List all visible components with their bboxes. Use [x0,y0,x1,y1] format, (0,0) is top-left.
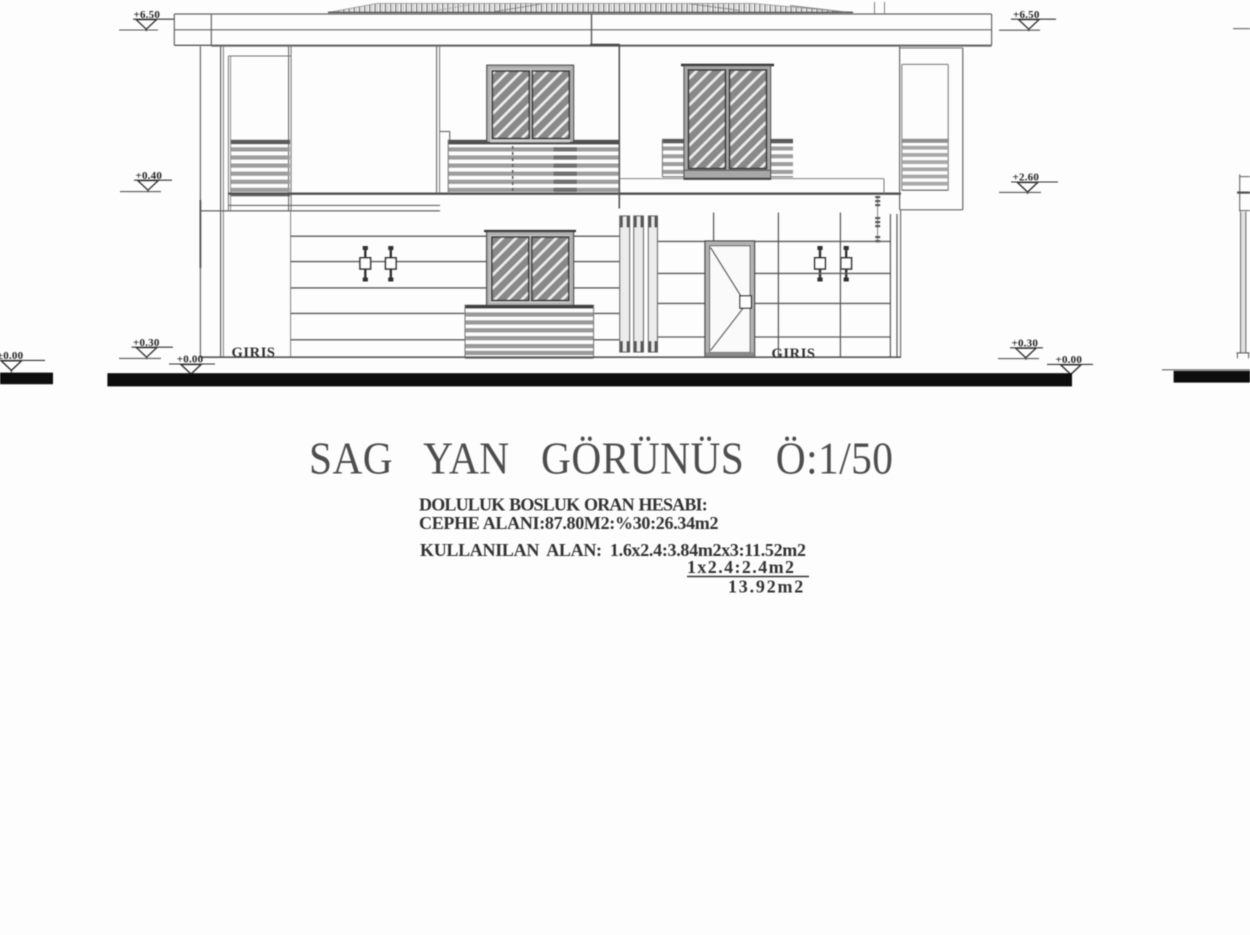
svg-text:13.92m2: 13.92m2 [728,577,805,597]
svg-text:SAG YAN GÖRÜNÜS Ö:1/50: SAG YAN GÖRÜNÜS Ö:1/50 [309,434,893,484]
svg-text:1x2.4:2.4m2: 1x2.4:2.4m2 [687,557,795,577]
svg-text:GIRIS: GIRIS [772,346,816,362]
svg-text:DOLULUK BOSLUK ORAN HESABI:: DOLULUK BOSLUK ORAN HESABI: [419,495,707,515]
svg-text:GIRIS: GIRIS [232,345,276,361]
svg-text:CEPHE ALANI:87.80M2:%30:26.34m: CEPHE ALANI:87.80M2:%30:26.34m2 [419,513,718,533]
